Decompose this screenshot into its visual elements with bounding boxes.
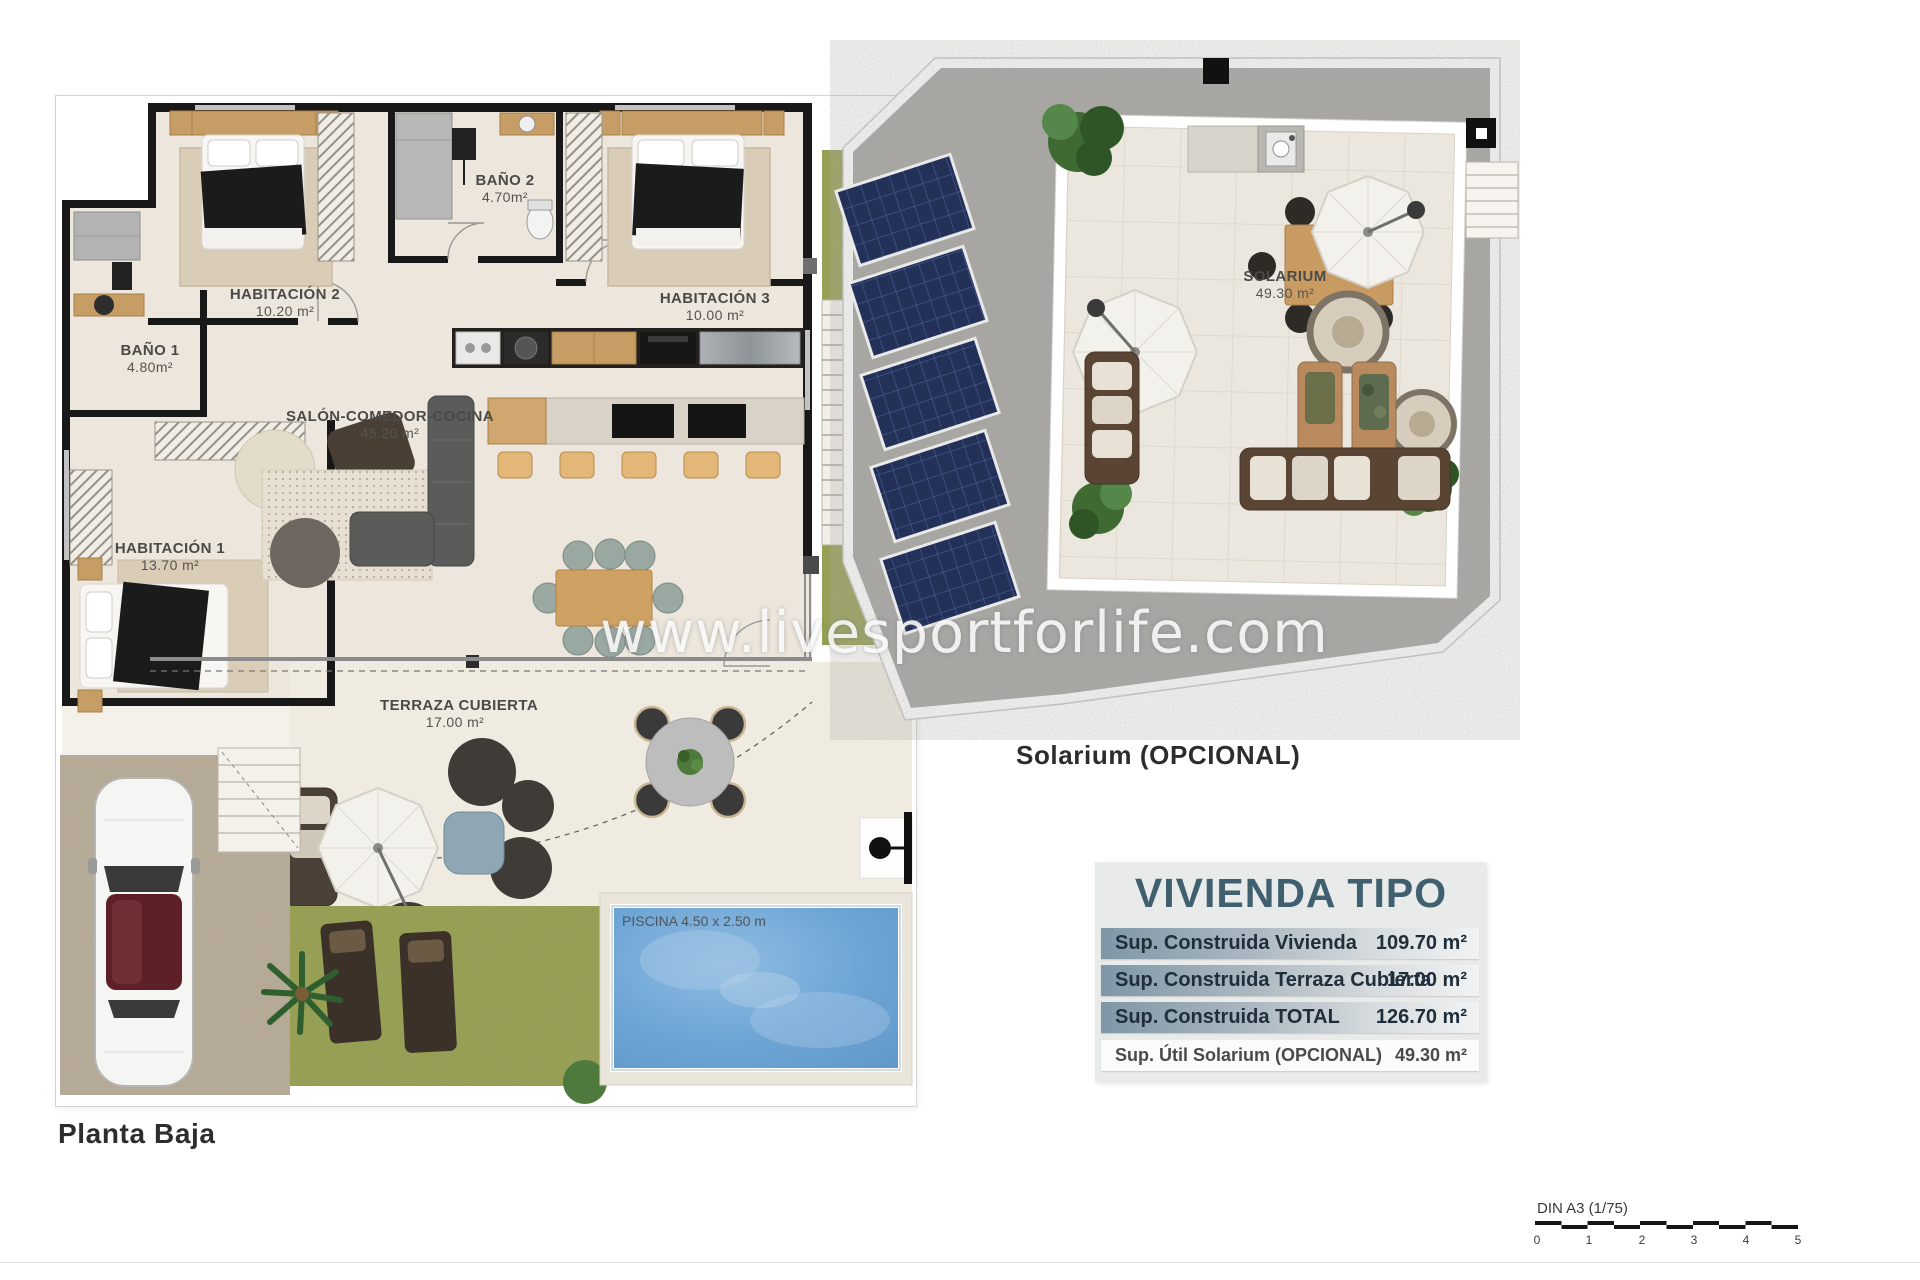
scale-tick: 0: [1534, 1233, 1541, 1247]
table-row: Sup. Construida Vivienda 109.70 m²: [1101, 928, 1479, 959]
scale-tick: 1: [1586, 1233, 1593, 1247]
floorplan-page: PISCINA 4.50 x 2.50 m HABITACIÓN 2 10.20…: [0, 0, 1920, 1280]
dining-table: [556, 570, 652, 626]
wardrobe-hab2: [318, 113, 354, 261]
roof-stairs: [1466, 162, 1518, 238]
summary-title: VIVIENDA TIPO: [1095, 870, 1487, 917]
planta-baja-caption: Planta Baja: [58, 1118, 216, 1150]
fridge-icon: [700, 332, 800, 364]
room-label-habitacion-1: HABITACIÓN 1 13.70 m²: [95, 540, 245, 574]
sink: [94, 295, 114, 315]
outdoor-table-set: [635, 707, 745, 817]
dark-round-rug: [270, 518, 340, 588]
low-table: [444, 812, 504, 874]
planta-baja-plan: PISCINA 4.50 x 2.50 m: [55, 95, 915, 1105]
room-label-habitacion-3: HABITACIÓN 3 10.00 m²: [635, 290, 795, 324]
car-icon: [88, 778, 200, 1086]
entry-steps: [218, 748, 300, 852]
pool-label: PISCINA 4.50 x 2.50 m: [622, 913, 766, 929]
ceiling-light-icon: [112, 262, 132, 290]
scale-tick: 3: [1691, 1233, 1698, 1247]
terrace-beam: [150, 657, 812, 661]
stool: [622, 452, 656, 478]
shower: [396, 113, 452, 219]
sofa-chaise: [350, 512, 434, 566]
pool: PISCINA 4.50 x 2.50 m: [600, 893, 912, 1085]
wardrobe-hab3: [566, 113, 602, 261]
stool: [684, 452, 718, 478]
summary-table: VIVIENDA TIPO Sup. Construida Vivienda 1…: [1095, 862, 1487, 1082]
nightstand: [170, 111, 192, 135]
washer-icon: [456, 332, 500, 364]
pouf: [502, 780, 554, 832]
table-row: Sup. Útil Solarium (OPCIONAL) 49.30 m²: [1101, 1040, 1479, 1071]
room-label-bano-1: BAÑO 1 4.80m²: [100, 342, 200, 376]
scale-tick: 4: [1743, 1233, 1750, 1247]
room-label-terraza: TERRAZA CUBIERTA 17.00 m²: [380, 697, 530, 731]
stool: [498, 452, 532, 478]
room-label-salon: SALÓN-COMEDOR-COCINA 45.20 m²: [280, 408, 500, 442]
table-row: Sup. Construida TOTAL 126.70 m²: [1101, 1002, 1479, 1033]
nightstand: [764, 111, 784, 135]
room-label-habitacion-2: HABITACIÓN 2 10.20 m²: [210, 286, 360, 320]
garage: [60, 748, 300, 1095]
stool: [560, 452, 594, 478]
ceiling-light-icon: [452, 128, 476, 160]
scale-bar-strip: [1535, 1225, 1798, 1229]
scale-bar: DIN A3 (1/75) 0 1 2 3 4 5: [1535, 1200, 1815, 1252]
blanket: [113, 582, 209, 690]
stool: [746, 452, 780, 478]
palm-trunk: [295, 987, 309, 1001]
page-bottom-line: [0, 1262, 1920, 1263]
solarium-plan: [830, 40, 1520, 740]
solarium-caption: Solarium (OPCIONAL): [1016, 740, 1300, 771]
garden-light-icon: [860, 812, 912, 884]
outdoor-kitchen: [1188, 126, 1304, 172]
scale-bar-label: DIN A3 (1/75): [1537, 1200, 1628, 1217]
sink-dark: [688, 404, 746, 438]
cooktop: [612, 404, 674, 438]
scale-tick: 5: [1795, 1233, 1802, 1247]
nightstand: [600, 111, 620, 135]
kitchen-counter: [452, 328, 804, 368]
lawn: [264, 906, 607, 1104]
room-label-solarium: SOLARIUM 49.30 m²: [1210, 268, 1360, 302]
headboard: [622, 111, 762, 135]
room-label-bano-2: BAÑO 2 4.70m²: [455, 172, 555, 206]
nightstand: [78, 690, 102, 712]
sink: [519, 116, 535, 132]
table-row: Sup. Construida Terraza Cubierta 17.00 m…: [1101, 965, 1479, 996]
headboard: [192, 111, 316, 135]
scale-tick: 2: [1639, 1233, 1646, 1247]
